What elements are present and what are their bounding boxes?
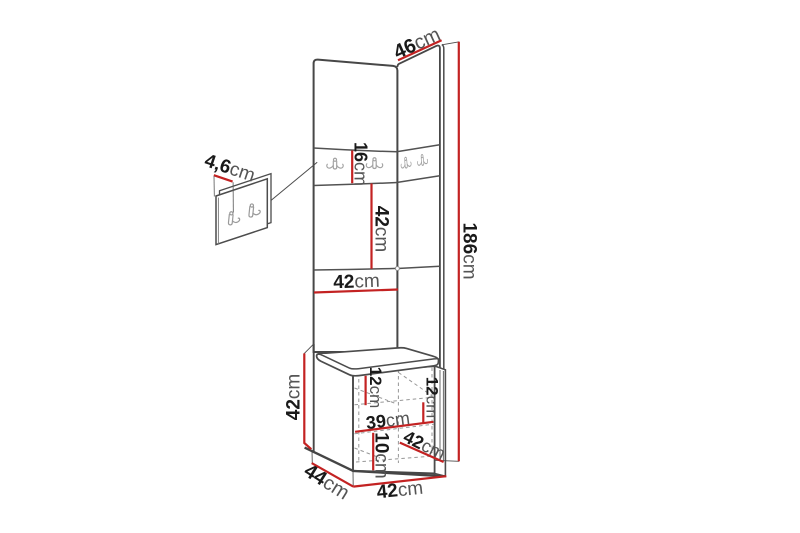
svg-text:10cm: 10cm <box>370 432 391 478</box>
svg-text:16cm: 16cm <box>351 142 371 186</box>
svg-text:12cm: 12cm <box>366 367 385 409</box>
svg-text:42cm: 42cm <box>284 374 305 420</box>
svg-text:12cm: 12cm <box>422 377 441 419</box>
svg-text:186cm: 186cm <box>458 222 479 279</box>
svg-text:42cm: 42cm <box>370 206 391 252</box>
svg-text:42cm: 42cm <box>333 271 380 294</box>
